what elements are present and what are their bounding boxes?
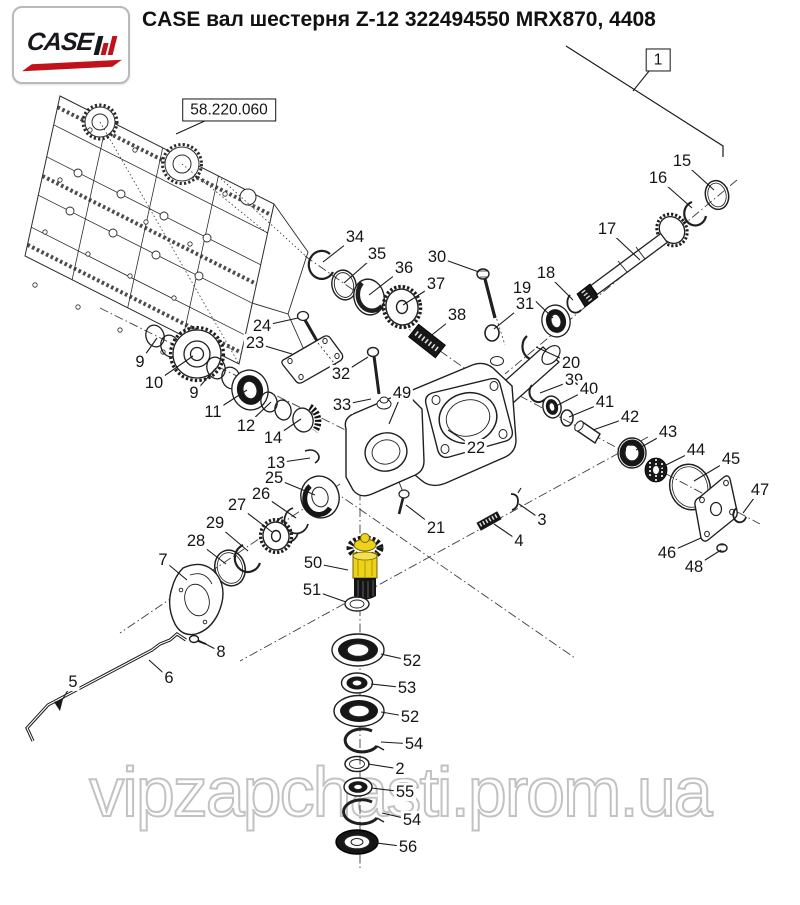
callout-9: 9 (187, 384, 200, 402)
callout-22: 22 (465, 439, 487, 457)
callout-17: 17 (596, 220, 618, 238)
callout-9: 9 (133, 353, 146, 371)
callout-8: 8 (214, 643, 227, 661)
callout-34: 34 (344, 228, 366, 246)
callout-52: 52 (401, 652, 423, 670)
callout-37: 37 (425, 275, 447, 293)
callout-11: 11 (202, 403, 223, 421)
callout-38: 38 (446, 306, 468, 324)
callout-5: 5 (66, 673, 79, 691)
callout-20: 20 (560, 354, 582, 372)
callout-2: 2 (393, 760, 406, 778)
callout-30: 30 (426, 248, 448, 266)
callout-48: 48 (683, 558, 705, 576)
callout-41: 41 (594, 393, 616, 411)
callout-12: 12 (235, 417, 257, 435)
callout-3: 3 (535, 511, 548, 529)
case-ih-logo: CASE (12, 6, 130, 84)
callout-10: 10 (143, 374, 165, 392)
logo-ih-mark-icon (94, 36, 118, 55)
logo-underline (22, 60, 122, 71)
page-title: CASE вал шестерня Z-12 322494550 MRX870,… (142, 8, 656, 32)
callout-31: 31 (514, 295, 536, 313)
callout-14: 14 (262, 429, 284, 447)
callout-36: 36 (393, 259, 415, 277)
logo-brand-text: CASE (26, 30, 94, 55)
callout-55: 55 (394, 783, 416, 801)
callout-28: 28 (185, 532, 207, 550)
callout-44: 44 (685, 441, 707, 459)
callout-33: 33 (331, 396, 353, 414)
callout-24: 24 (251, 317, 273, 335)
callout-15: 15 (671, 152, 693, 170)
callout-35: 35 (366, 245, 388, 263)
callout-21: 21 (425, 519, 447, 537)
callout-46: 46 (656, 544, 678, 562)
callout-54: 54 (403, 735, 425, 753)
callout-4: 4 (512, 532, 525, 550)
callout-6: 6 (162, 669, 175, 687)
callout-49: 49 (391, 384, 413, 402)
callout-26: 26 (250, 485, 272, 503)
callout-23: 23 (244, 334, 266, 352)
callout-56: 56 (397, 838, 419, 856)
callout-29: 29 (204, 514, 226, 532)
callout-51: 51 (301, 581, 323, 599)
callout-53: 53 (396, 679, 418, 697)
callout-42: 42 (619, 408, 641, 426)
callout-54: 54 (401, 811, 423, 829)
callout-1: 1 (646, 48, 671, 71)
callout-16: 16 (647, 169, 669, 187)
callout-43: 43 (657, 423, 679, 441)
callout-58.220.060: 58.220.060 (182, 98, 276, 121)
callout-18: 18 (535, 264, 557, 282)
callout-52: 52 (399, 708, 421, 726)
callout-27: 27 (226, 496, 248, 514)
callout-47: 47 (749, 481, 771, 499)
callout-50: 50 (302, 554, 324, 572)
callout-45: 45 (720, 450, 742, 468)
logo-text-row: CASE (27, 30, 115, 55)
callout-7: 7 (156, 551, 169, 569)
parts-catalog-page: CASE CASE вал шестерня Z-12 322494550 MR… (0, 0, 800, 905)
callout-32: 32 (330, 365, 352, 383)
